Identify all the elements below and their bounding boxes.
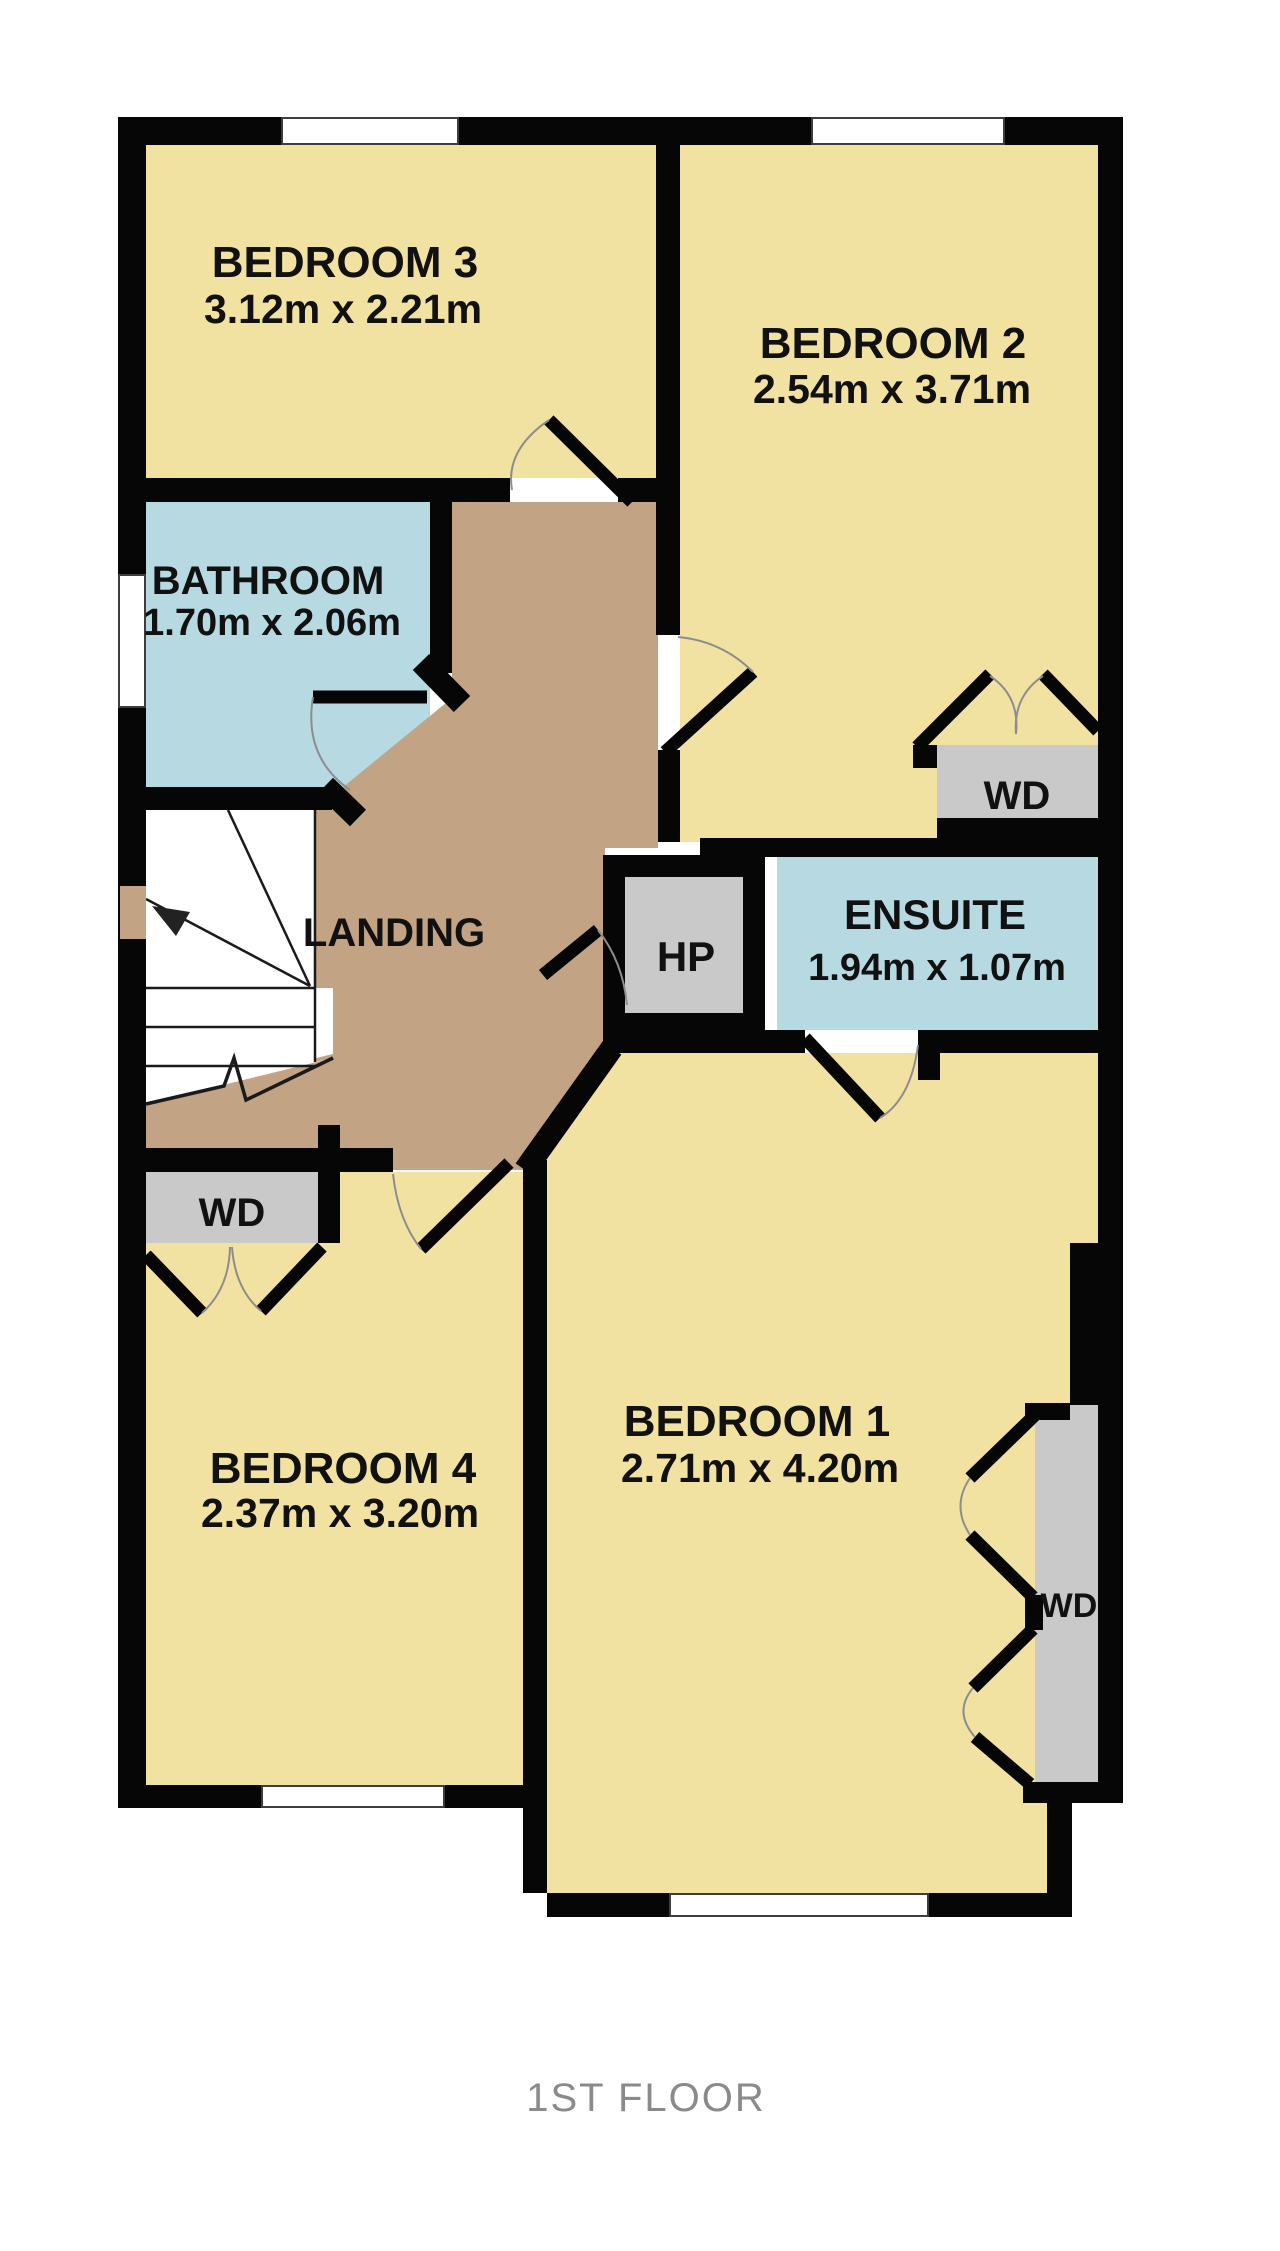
wall-segment bbox=[430, 502, 452, 673]
wall-chimney-breast bbox=[1070, 1243, 1098, 1405]
bedroom-4-wardrobe-label: WD bbox=[199, 1191, 266, 1235]
ensuite-floor bbox=[777, 857, 1098, 1030]
stairs-floor bbox=[146, 810, 333, 1104]
bathroom-dims: 1.70m x 2.06m bbox=[143, 602, 401, 644]
wall-segment bbox=[523, 1160, 547, 1893]
landing-label: LANDING bbox=[303, 911, 485, 955]
wall-segment bbox=[700, 838, 1123, 857]
bedroom-2-dims: 2.54m x 3.71m bbox=[753, 366, 1031, 412]
floor-title: 1ST FLOOR bbox=[526, 2076, 766, 2120]
bathroom-window bbox=[119, 575, 145, 707]
bedroom-2-floor bbox=[680, 145, 1098, 745]
bedroom-2-doorway-floor bbox=[680, 745, 937, 842]
wall-segment bbox=[913, 745, 937, 768]
bedroom-2-window bbox=[812, 118, 1004, 144]
bedroom-3-window bbox=[282, 118, 458, 144]
bedroom-1-window bbox=[670, 1894, 928, 1916]
bedroom-3-dims: 3.12m x 2.21m bbox=[204, 286, 482, 332]
bedroom-1-dims: 2.71m x 4.20m bbox=[621, 1445, 899, 1491]
bedroom-1-label: BEDROOM 1 bbox=[624, 1397, 890, 1446]
staircase bbox=[146, 810, 333, 1104]
bedroom-2-label: BEDROOM 2 bbox=[760, 319, 1026, 368]
wall-segment bbox=[146, 478, 510, 502]
bedroom-3-label: BEDROOM 3 bbox=[212, 238, 478, 287]
floor-plan-drawing: BEDROOM 3 3.12m x 2.21m BEDROOM 2 2.54m … bbox=[0, 0, 1280, 2251]
ensuite-dims: 1.94m x 1.07m bbox=[808, 947, 1066, 989]
bedroom-4-dims: 2.37m x 3.20m bbox=[201, 1490, 479, 1536]
wall-segment bbox=[658, 750, 680, 842]
bedroom-4-window bbox=[262, 1786, 444, 1807]
floor-plan-page: BEDROOM 3 3.12m x 2.21m BEDROOM 2 2.54m … bbox=[0, 0, 1280, 2251]
stairs-void-opening bbox=[120, 886, 146, 939]
bedroom-4-label: BEDROOM 4 bbox=[210, 1444, 477, 1493]
wall-segment bbox=[118, 1148, 393, 1172]
hot-press-label: HP bbox=[657, 933, 715, 980]
bedroom-1-wardrobe-label: WD bbox=[1041, 1587, 1098, 1625]
bathroom-label: BATHROOM bbox=[152, 559, 385, 603]
wall-segment bbox=[603, 1030, 805, 1053]
wall-segment bbox=[918, 1030, 1123, 1053]
ensuite-label: ENSUITE bbox=[844, 891, 1026, 938]
wall-segment bbox=[918, 1053, 940, 1080]
wall-segment bbox=[1098, 117, 1123, 1803]
wall-segment bbox=[318, 1125, 340, 1243]
wall-segment bbox=[118, 787, 332, 810]
wall-segment bbox=[656, 145, 680, 635]
wall-segment bbox=[1023, 1782, 1123, 1803]
bedroom-2-wardrobe-label: WD bbox=[984, 774, 1051, 818]
wall-segment bbox=[118, 117, 146, 1808]
wall-segment bbox=[1047, 1803, 1072, 1917]
